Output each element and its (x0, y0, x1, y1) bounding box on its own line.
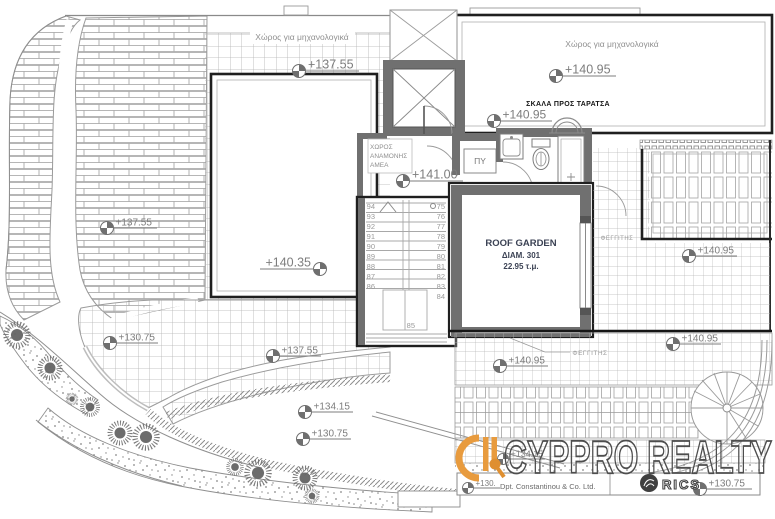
label-amea-3: ΑΜΕΑ (370, 162, 389, 169)
svg-text:94: 94 (367, 202, 375, 211)
svg-text:83: 83 (437, 282, 445, 291)
svg-text:85: 85 (407, 321, 415, 330)
svg-text:91: 91 (367, 232, 375, 241)
svg-text:+140.95: +140.95 (698, 246, 735, 257)
floor-plan-page: Χώρος για μηχανολογικά Χώρος για μηχανολ… (0, 0, 775, 519)
svg-text:+134.15: +134.15 (314, 402, 351, 413)
label-roof-garden-title: ROOF GARDEN (485, 238, 556, 249)
company-name: Dpt. Constantinou & Co. Ltd. (500, 482, 595, 491)
benchmark-icon (267, 350, 280, 363)
benchmark-icon (293, 65, 306, 78)
svg-text:+137.55: +137.55 (116, 218, 153, 229)
label-roof-garden-area: 22.95 τ.μ. (503, 262, 538, 271)
svg-text:+130.75: +130.75 (119, 333, 156, 344)
benchmark-icon (683, 250, 696, 263)
benchmark-icon (314, 263, 327, 276)
svg-text:+140.95: +140.95 (565, 63, 611, 77)
floor-plan-drawing: Χώρος για μηχανολογικά Χώρος για μηχανολ… (0, 0, 775, 519)
shower-icon (558, 136, 584, 189)
svg-text:+140.95: +140.95 (682, 334, 719, 345)
label-skylight-upper: ΦΕΓΓΙΤΗΣ (601, 236, 634, 242)
label-skylight-lower: ΦΕΓΓΙΤΗΣ (572, 350, 607, 357)
svg-text:78: 78 (437, 232, 445, 241)
sink-icon (500, 134, 523, 159)
benchmark-icon (462, 482, 473, 493)
roof-garden-room (449, 183, 593, 337)
toilet-icon (532, 139, 550, 170)
svg-text:+137.55: +137.55 (282, 346, 319, 357)
label-mech-room-left: Χώρος για μηχανολογικά (255, 32, 348, 42)
svg-text:82: 82 (437, 272, 445, 281)
svg-text:75: 75 (437, 202, 445, 211)
svg-text:79: 79 (437, 242, 445, 251)
branding: CYPPRO REALTY Dpt. Constantinou & Co. Lt… (459, 431, 772, 492)
benchmark-icon (101, 222, 114, 235)
label-roof-garden-unit: ΔΙΑΜ. 301 (502, 251, 541, 260)
tree-icon (110, 423, 130, 443)
level-marker: +130.75 (297, 429, 352, 446)
benchmark-icon (550, 70, 563, 83)
benchmark-icon (297, 433, 310, 446)
svg-text:+141.00: +141.00 (412, 168, 458, 182)
benchmark-icon (299, 406, 312, 419)
svg-text:80: 80 (437, 252, 445, 261)
brand-name: CYPPRO REALTY (504, 431, 772, 483)
svg-text:84: 84 (437, 292, 445, 301)
label-py: ΠΥ (474, 156, 486, 166)
window-icon (580, 216, 591, 315)
label-mech-room-right: Χώρος για μηχανολογικά (565, 39, 658, 49)
svg-text:89: 89 (367, 252, 375, 261)
label-amea-2: ΑΝΑΜΟΝΗΣ (370, 153, 407, 160)
svg-text:+140.95: +140.95 (503, 108, 547, 122)
svg-text:88: 88 (367, 262, 375, 271)
svg-text:76: 76 (437, 212, 445, 221)
benchmark-icon (397, 175, 410, 188)
benchmark-icon (494, 360, 507, 373)
svg-text:86: 86 (367, 282, 375, 291)
svg-text:93: 93 (367, 212, 375, 221)
level-marker: +134.15 (299, 402, 354, 419)
svg-text:77: 77 (437, 222, 445, 231)
svg-text:87: 87 (367, 272, 375, 281)
svg-text:92: 92 (367, 222, 375, 231)
svg-text:90: 90 (367, 242, 375, 251)
svg-text:81: 81 (437, 262, 445, 271)
svg-text:+140.95: +140.95 (509, 356, 546, 367)
tree-icon (135, 426, 157, 448)
rics-lion-icon (640, 474, 658, 492)
benchmark-icon (488, 115, 501, 128)
tree-icon (228, 460, 242, 474)
label-amea-1: ΧΩΡΟΣ (370, 144, 393, 151)
benchmark-icon (667, 338, 680, 351)
rics-label: RICS (662, 477, 701, 492)
svg-text:+130.75: +130.75 (312, 429, 349, 440)
svg-text:+140.35: +140.35 (265, 256, 311, 270)
svg-text:+137.55: +137.55 (308, 58, 354, 72)
benchmark-icon (104, 337, 117, 350)
